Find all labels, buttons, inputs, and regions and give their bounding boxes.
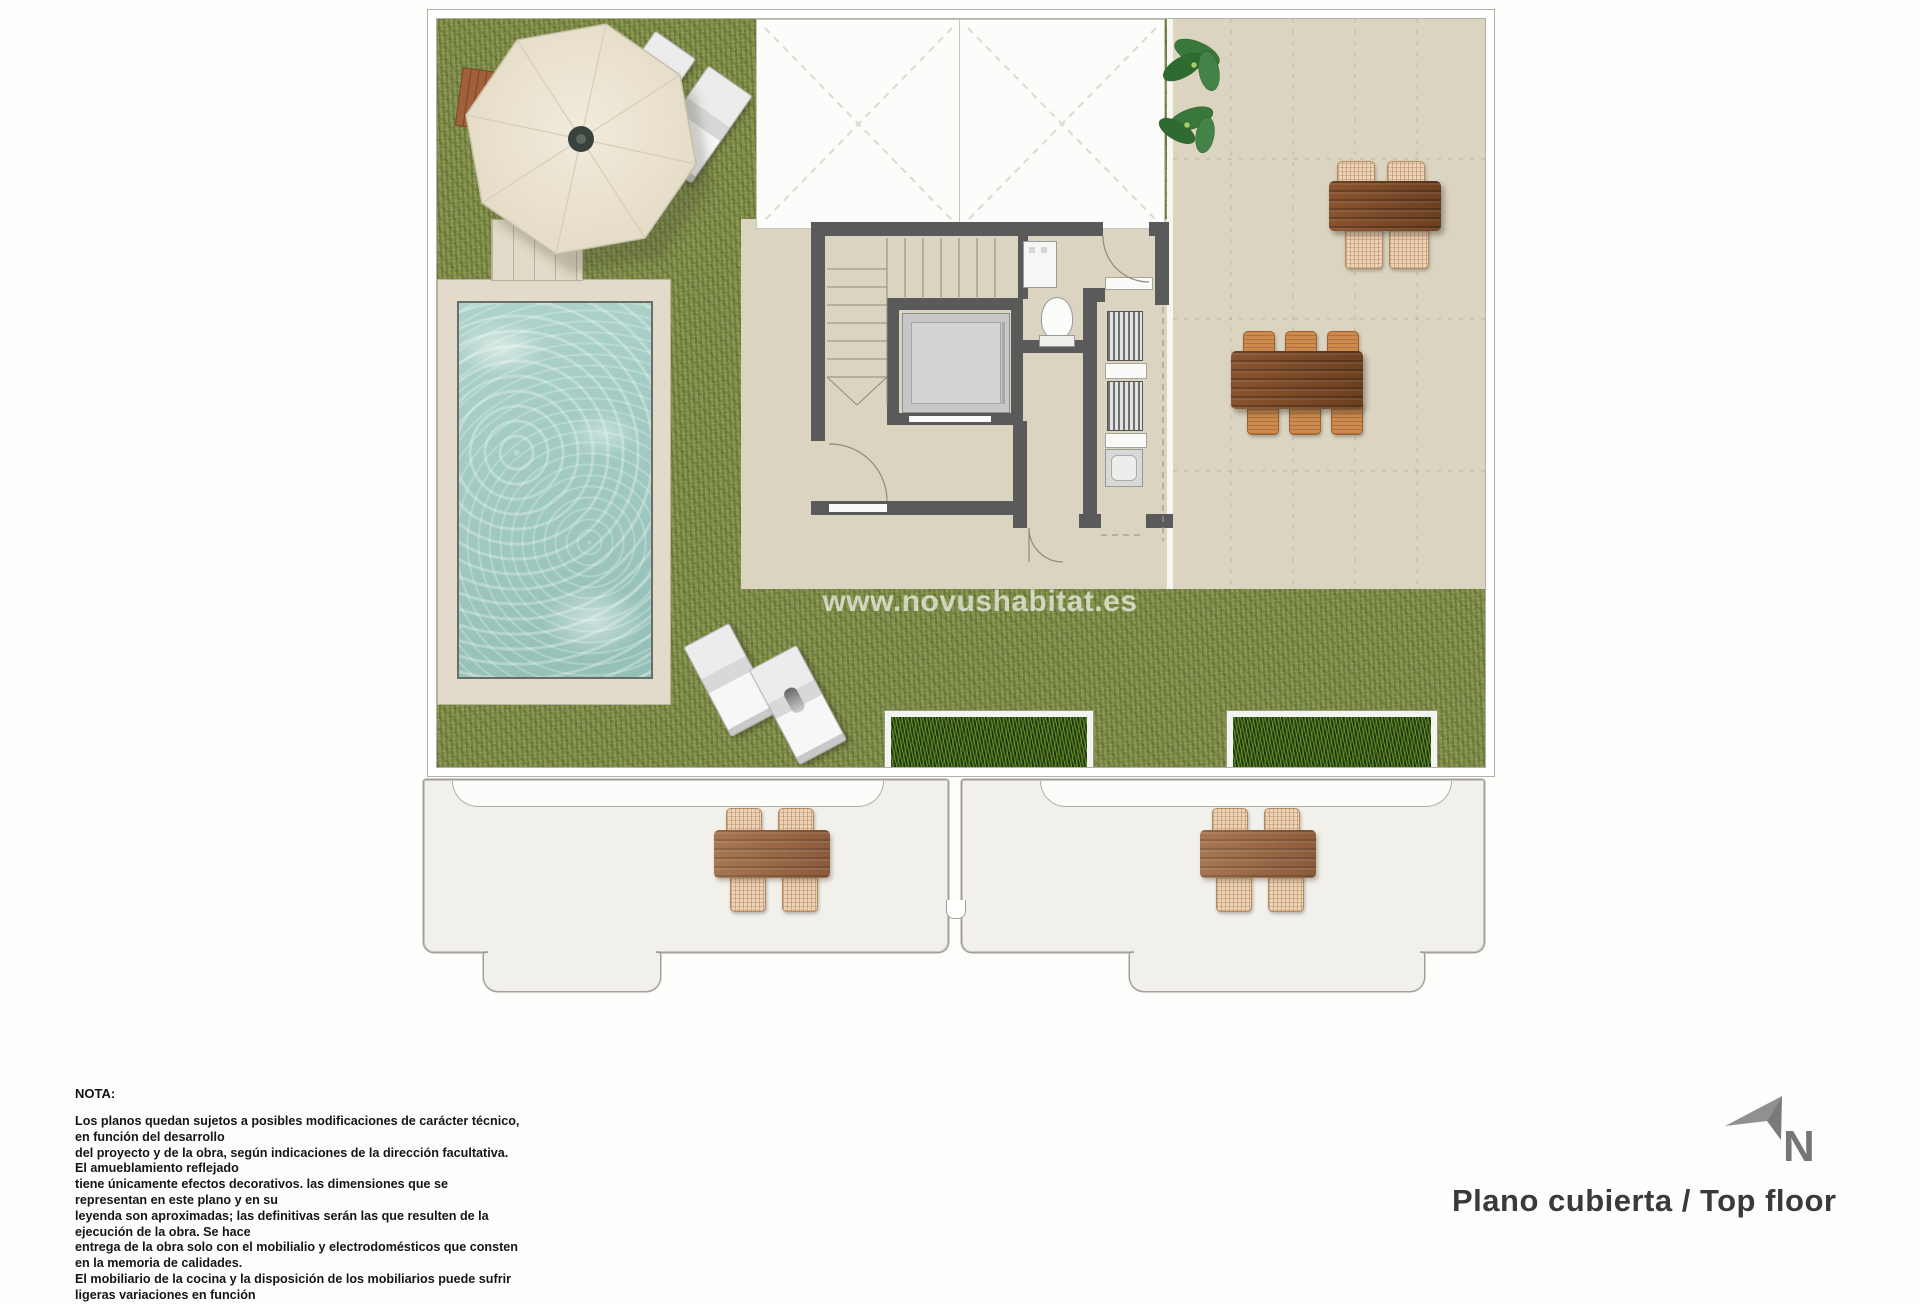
north-arrow-icon [1715, 1088, 1835, 1178]
page: { "watermark": { "text": "www.novushabit… [0, 0, 1920, 1200]
door-arc-bottom [1029, 528, 1063, 562]
awning-left [452, 781, 884, 807]
note-line: tiene únicamente efectos decorativos. la… [75, 1177, 523, 1209]
watermark: www.novushabitat.es [815, 585, 1145, 619]
plant [1161, 23, 1241, 153]
planter-right [1227, 711, 1437, 768]
door-arc-left [829, 444, 887, 501]
swimming-pool [457, 301, 653, 679]
chair [1345, 227, 1383, 269]
towel [782, 685, 807, 715]
dining-table-2 [1231, 351, 1363, 409]
chair [1268, 872, 1304, 912]
chair [1216, 872, 1252, 912]
balcony-right-join [1134, 948, 1420, 956]
note-line: del proyecto y de la obra, según indicac… [75, 1146, 523, 1178]
lower-table-right [1200, 830, 1316, 878]
balcony-right [1130, 953, 1424, 991]
north-label: N [1783, 1122, 1815, 1172]
lower-table-left [714, 830, 830, 878]
chair [1389, 227, 1429, 269]
note-line: entrega de la obra solo con el mobiliali… [75, 1240, 523, 1272]
door-arc-top [1103, 236, 1149, 282]
plan-title: Plano cubierta / Top floor [1452, 1183, 1836, 1219]
roof-plan-frame: www.novushabitat.es [428, 10, 1494, 776]
roof-plan-grass-area: www.novushabitat.es [436, 18, 1486, 768]
balcony-left [484, 953, 660, 991]
core-linework [801, 211, 1181, 581]
chair [782, 872, 818, 912]
balcony-left-join [488, 948, 656, 956]
skylight-left [756, 19, 961, 229]
dining-table-1 [1329, 181, 1441, 231]
note-line: leyenda son aproximadas; las definitivas… [75, 1209, 523, 1241]
room-divider-notch [946, 900, 966, 919]
note-body: Los planos quedan sujetos a posibles mod… [75, 1114, 523, 1304]
planter-left [885, 711, 1093, 768]
note-title: NOTA: [75, 1086, 115, 1101]
parasol [441, 18, 731, 279]
chair [730, 872, 766, 912]
awning-right [1040, 781, 1452, 807]
note-line: El mobiliario de la cocina y la disposic… [75, 1272, 523, 1304]
note-line: Los planos quedan sujetos a posibles mod… [75, 1114, 523, 1146]
skylight-right [959, 19, 1165, 229]
